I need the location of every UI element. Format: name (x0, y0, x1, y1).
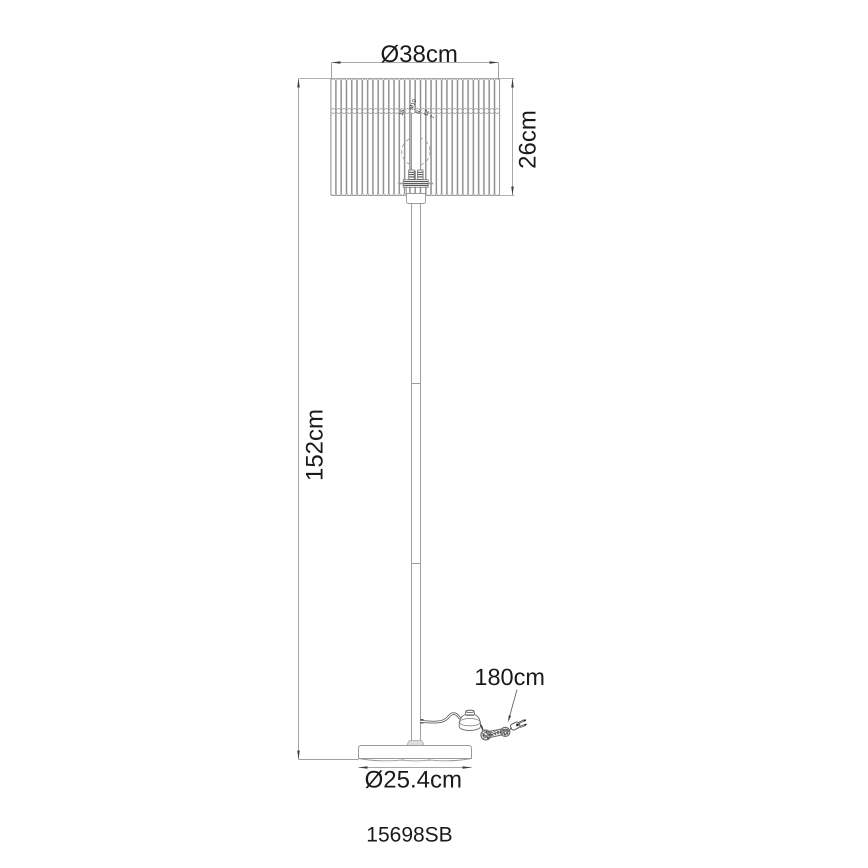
svg-text:152cm: 152cm (302, 409, 329, 481)
svg-text:15698SB: 15698SB (366, 823, 452, 846)
svg-text:Ø38cm: Ø38cm (381, 41, 458, 68)
svg-text:180cm: 180cm (474, 664, 545, 690)
svg-text:Ø25.4cm: Ø25.4cm (365, 767, 462, 794)
svg-text:26cm: 26cm (515, 110, 542, 169)
